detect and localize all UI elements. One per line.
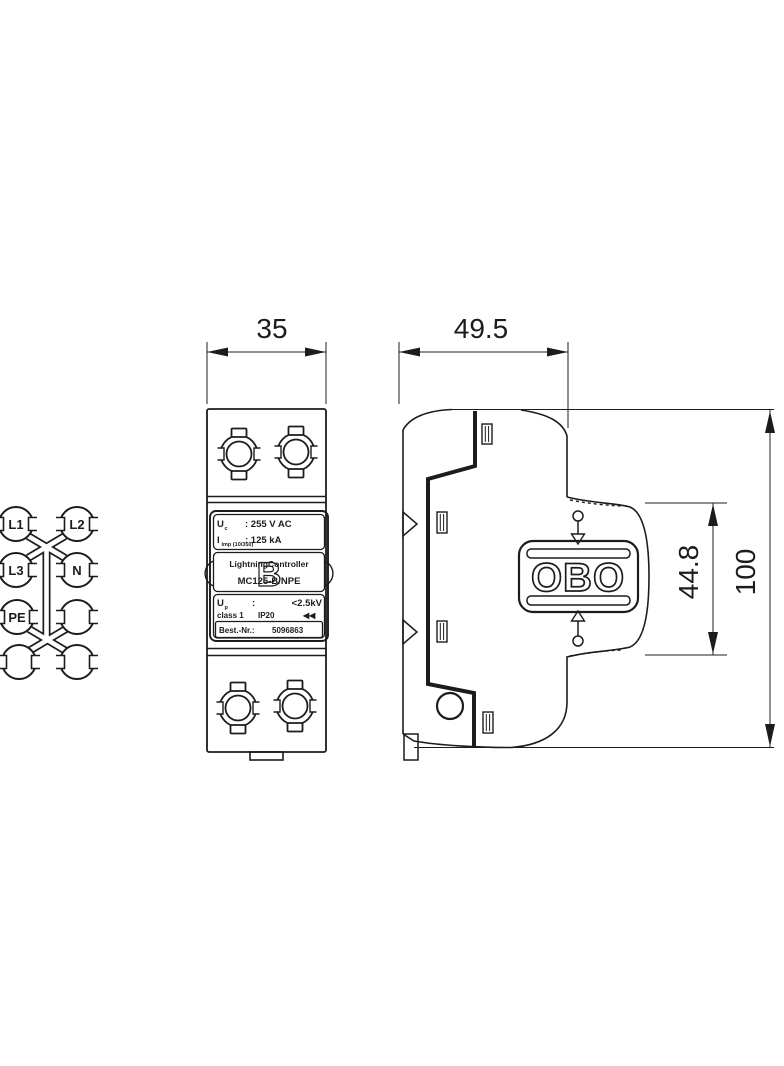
uc-symbol: U: [217, 519, 224, 530]
terminal-label-l2: L2: [69, 517, 84, 532]
side-depth-dimension: 49.5: [399, 313, 568, 428]
iimp-symbol: I: [217, 535, 220, 546]
vent-slot: [437, 512, 447, 533]
class-rating: class 1: [217, 611, 244, 620]
obo-logo-text: OBO: [531, 556, 625, 600]
device-label: U c : 255 V AC I imp (10/350) : 125 kA B…: [205, 511, 333, 641]
terminal-label-l3: L3: [8, 563, 23, 578]
order-number: 5096863: [272, 626, 304, 635]
side-depth-value: 49.5: [454, 313, 509, 344]
knurling-marks: [570, 650, 622, 656]
up-colon: :: [252, 598, 255, 609]
module-separation-line: [428, 411, 475, 746]
terminal-label-pe: PE: [8, 610, 26, 625]
dim-arrowhead: [305, 348, 326, 357]
unlock-arrow-up-icon: [572, 611, 585, 646]
din-rail-flange: [403, 512, 417, 536]
side-view: OBO: [403, 410, 774, 761]
schematic-connectors: [28, 536, 66, 651]
module-height-dimension: 44.8: [645, 503, 727, 655]
order-label: Best.-Nr.:: [219, 626, 255, 635]
cert-mark-icon: ◀◀: [302, 611, 316, 620]
dim-arrowhead: [399, 348, 420, 357]
vent-slot: [482, 424, 492, 444]
mounting-hole: [437, 693, 463, 719]
obo-logo-plate: OBO: [519, 541, 638, 612]
uc-value: : 255 V AC: [245, 519, 292, 530]
up-symbol: U: [217, 598, 224, 609]
iimp-value: : 125 kA: [245, 535, 282, 546]
dim-arrowhead: [765, 724, 775, 747]
unlock-arrow-down-icon: [572, 511, 585, 544]
up-value: <2.5kV: [292, 598, 323, 609]
screw-terminal: [217, 429, 262, 480]
front-width-value: 35: [256, 313, 287, 344]
screw-terminal: [274, 427, 319, 478]
total-height-dimension: 100: [730, 410, 775, 748]
dim-arrowhead: [765, 411, 775, 433]
vent-slot: [483, 712, 493, 733]
screw-terminal: [273, 681, 318, 732]
terminal-label-n: N: [72, 563, 81, 578]
total-height-value: 100: [730, 549, 761, 596]
dim-arrowhead: [207, 348, 228, 357]
dim-arrowhead: [708, 504, 718, 526]
dim-arrowhead: [708, 632, 718, 654]
din-rail-flange: [403, 620, 417, 644]
terminal-label-l1: L1: [8, 517, 23, 532]
dim-arrowhead: [547, 348, 568, 357]
brand-name: LightningController: [229, 559, 309, 569]
front-width-dimension: 35: [207, 313, 326, 404]
bottom-tab: [250, 752, 283, 760]
screw-terminal: [216, 683, 261, 734]
vent-slot: [437, 621, 447, 642]
uc-subscript: c: [225, 526, 228, 532]
model-number: MC125-B/NPE: [238, 576, 301, 587]
wiring-schematic: L1 L2 L3 N PE: [0, 507, 99, 679]
knurling-marks: [570, 500, 622, 506]
module-height-value: 44.8: [673, 545, 704, 600]
front-view: U c : 255 V AC I imp (10/350) : 125 kA B…: [205, 409, 333, 760]
ip-rating: IP20: [258, 611, 275, 620]
dimension-drawing: L1 L2 L3 N PE U c : 255 V AC I imp (10/3…: [0, 0, 784, 1066]
technical-drawing-page: L1 L2 L3 N PE U c : 255 V AC I imp (10/3…: [0, 0, 784, 1066]
